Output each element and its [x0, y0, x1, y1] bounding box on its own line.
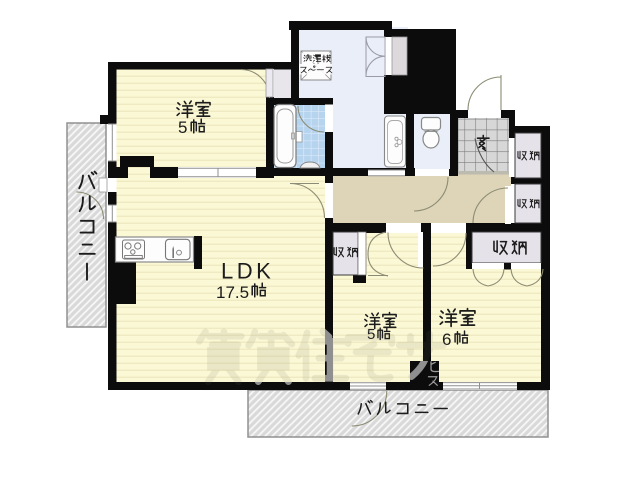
svg-text:17.5: 17.5: [216, 283, 249, 302]
svg-text:5: 5: [178, 118, 187, 137]
svg-text:LDK: LDK: [221, 259, 274, 284]
